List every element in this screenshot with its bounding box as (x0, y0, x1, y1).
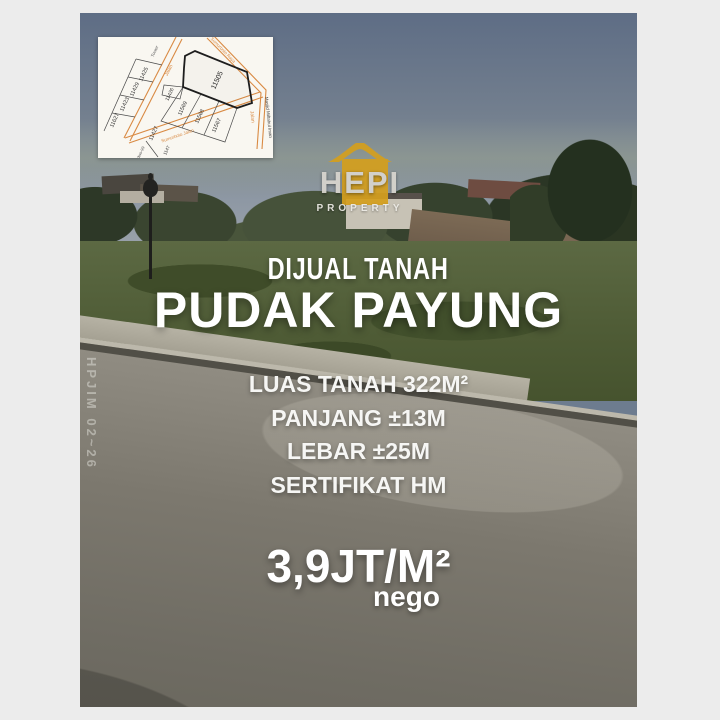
site-plan-inset: 11505 11569 11568 11567 11426 11425 1142… (98, 37, 273, 158)
price-note-text: nego (373, 581, 440, 613)
headline-title: PUDAK PAYUNG (80, 281, 637, 339)
brand-logo: HEPI PROPERTY (296, 139, 424, 235)
land-photo: 11505 11569 11568 11567 11426 11425 1142… (80, 13, 637, 707)
price-note: nego (80, 581, 637, 613)
house-wall (120, 191, 164, 203)
detail-lebar: LEBAR ±25M (80, 435, 637, 469)
property-details: LUAS TANAH 322M² PANJANG ±13M LEBAR ±25M… (80, 368, 637, 502)
detail-sertifikat: SERTIFIKAT HM (80, 469, 637, 503)
detail-luas: LUAS TANAH 322M² (80, 368, 637, 402)
logo-name: HEPI (296, 165, 424, 201)
street-lamp-finial (148, 173, 153, 180)
site-plan-svg: 11505 11569 11568 11567 11426 11425 1142… (98, 37, 273, 158)
detail-panjang: PANJANG ±13M (80, 402, 637, 436)
watermark-code: HPJIM 02~26 (84, 357, 99, 470)
flyer-canvas: 11505 11569 11568 11567 11426 11425 1142… (0, 0, 720, 720)
logo-subtitle: PROPERTY (296, 203, 424, 214)
road-label: Jalan (248, 111, 255, 124)
street-lamp-icon (143, 179, 158, 197)
